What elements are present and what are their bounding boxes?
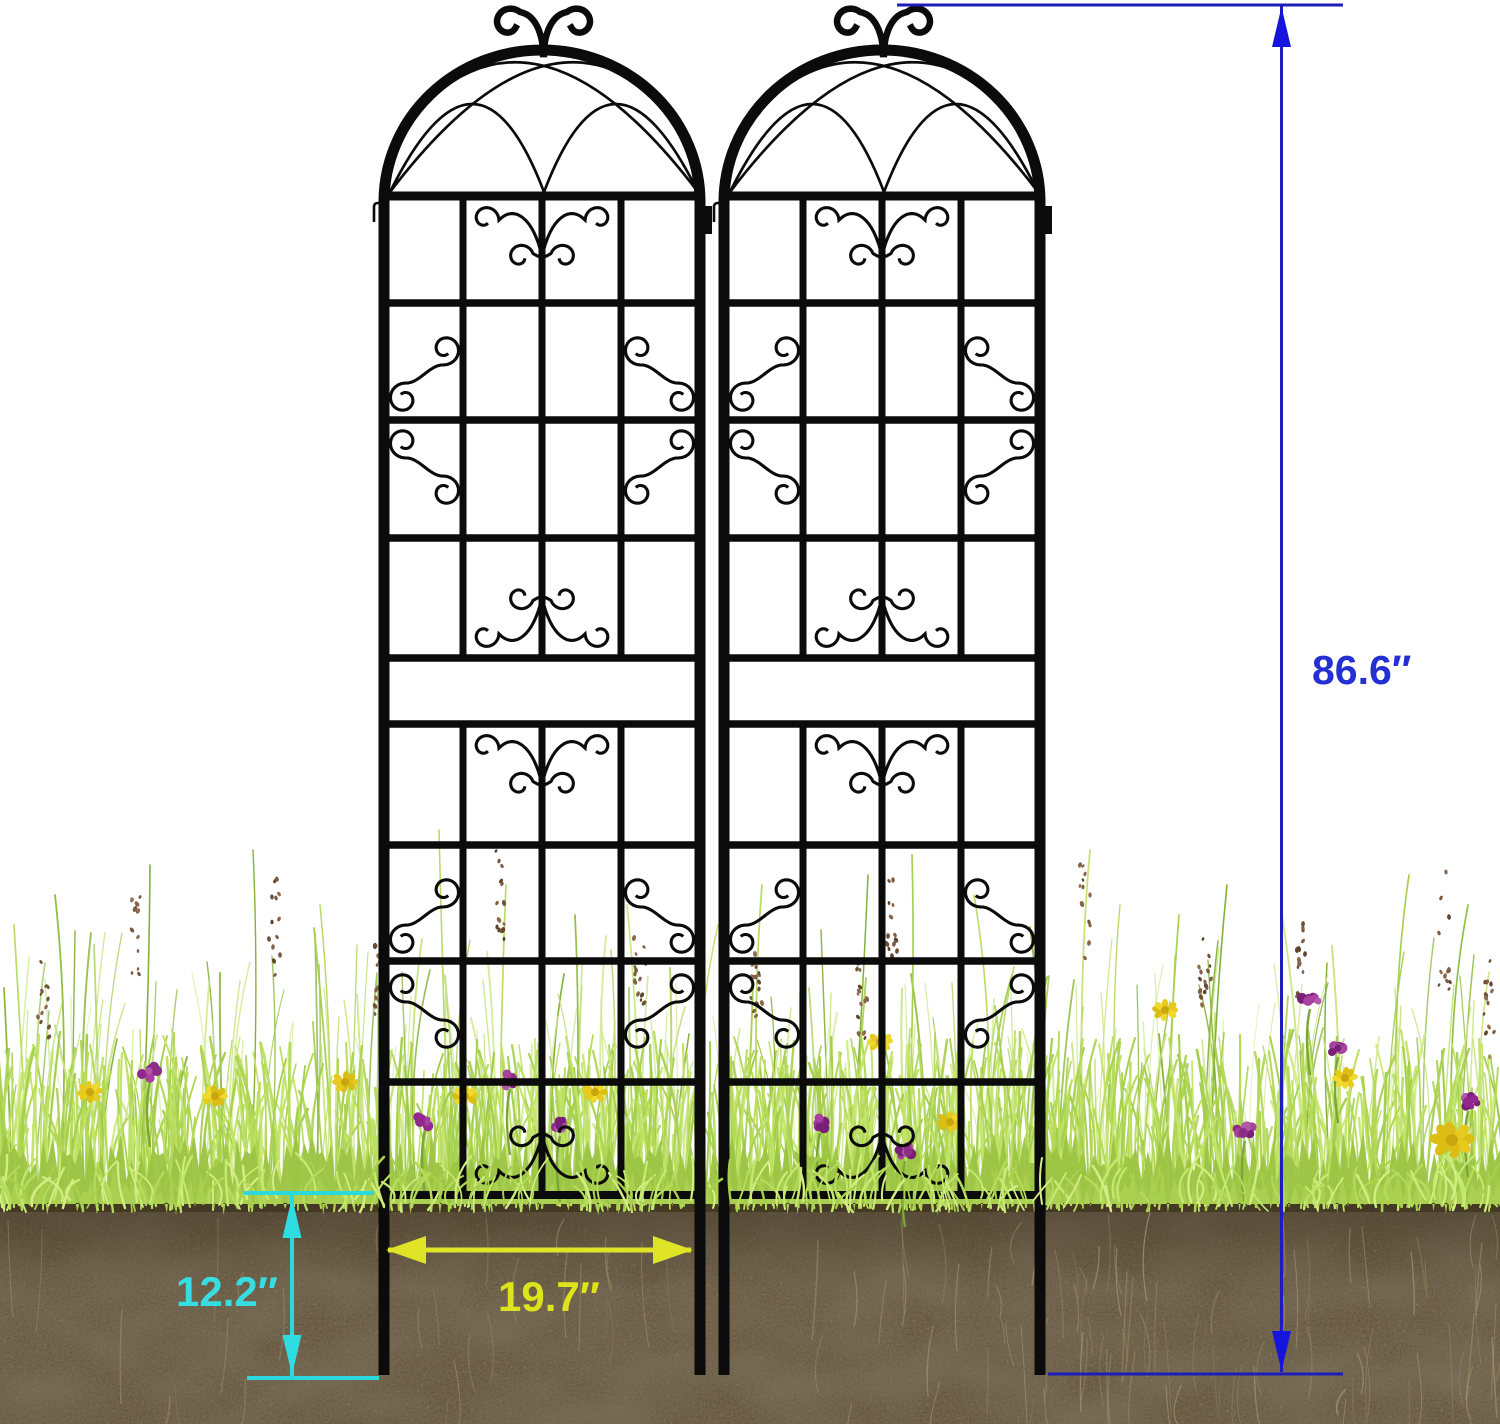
svg-text:19.7″: 19.7″ bbox=[498, 1273, 600, 1320]
svg-text:12.2″: 12.2″ bbox=[176, 1268, 278, 1315]
svg-text:86.6″: 86.6″ bbox=[1312, 647, 1411, 693]
